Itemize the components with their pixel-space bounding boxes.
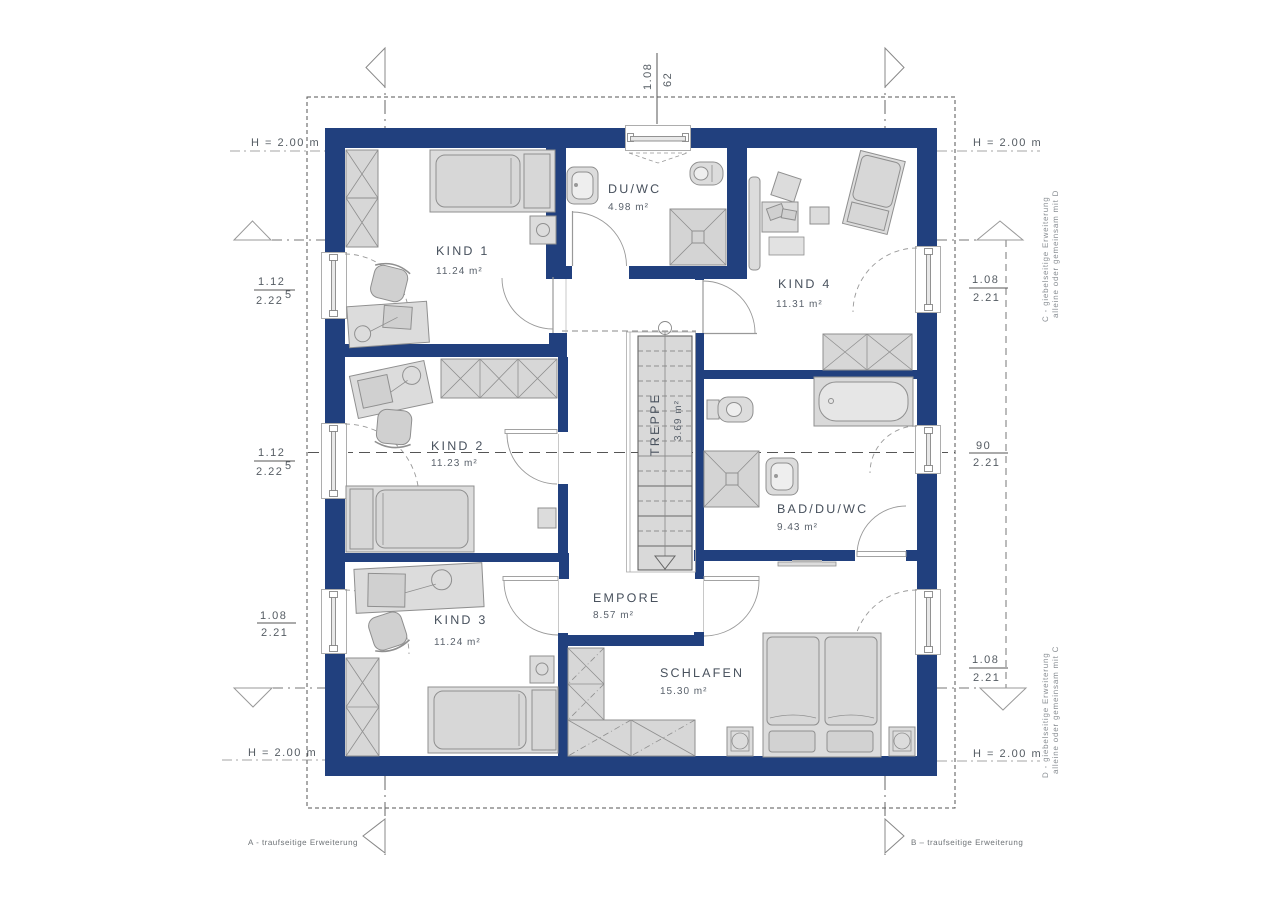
svg-text:1.08: 1.08 — [972, 274, 999, 286]
svg-text:TREPPE: TREPPE — [648, 393, 662, 456]
svg-text:A - traufseitige Erweiterung: A - traufseitige Erweiterung — [248, 838, 358, 847]
svg-text:H = 2.00 m: H = 2.00 m — [248, 747, 317, 759]
svg-text:DU/WC: DU/WC — [608, 182, 661, 196]
svg-text:BAD/DU/WC: BAD/DU/WC — [777, 502, 868, 516]
svg-text:62: 62 — [662, 72, 674, 87]
svg-text:1.08: 1.08 — [260, 610, 287, 622]
svg-text:H = 2.00 m: H = 2.00 m — [973, 748, 1042, 760]
svg-text:2.21: 2.21 — [973, 292, 1000, 304]
svg-text:11.31 m²: 11.31 m² — [776, 299, 823, 310]
svg-text:2.22: 2.22 — [256, 466, 283, 478]
svg-text:1.12: 1.12 — [258, 276, 285, 288]
svg-text:H = 2.00 m: H = 2.00 m — [251, 137, 320, 149]
svg-text:5: 5 — [285, 289, 293, 301]
svg-text:90: 90 — [976, 440, 991, 452]
svg-text:11.23 m²: 11.23 m² — [431, 458, 478, 469]
svg-text:alleine oder gemeinsam mit C: alleine oder gemeinsam mit C — [1051, 646, 1060, 774]
svg-text:2.21: 2.21 — [973, 672, 1000, 684]
svg-text:SCHLAFEN: SCHLAFEN — [660, 666, 744, 680]
svg-text:H = 2.00 m: H = 2.00 m — [973, 137, 1042, 149]
svg-text:9.43 m²: 9.43 m² — [777, 522, 818, 533]
svg-text:D - giebelseitige Erweiterung: D - giebelseitige Erweiterung — [1041, 653, 1050, 778]
svg-text:EMPORE: EMPORE — [593, 591, 660, 605]
svg-text:15.30 m²: 15.30 m² — [660, 686, 707, 697]
svg-text:4.98 m²: 4.98 m² — [608, 202, 649, 213]
svg-text:1.12: 1.12 — [258, 447, 285, 459]
svg-text:11.24 m²: 11.24 m² — [436, 266, 483, 277]
svg-text:C - giebelseitige Erweiterung: C - giebelseitige Erweiterung — [1041, 197, 1050, 322]
svg-text:8.57 m²: 8.57 m² — [593, 610, 634, 621]
svg-text:2.21: 2.21 — [261, 627, 288, 639]
svg-text:1.08: 1.08 — [642, 63, 654, 90]
svg-text:5: 5 — [285, 460, 293, 472]
svg-text:3.69 m²: 3.69 m² — [673, 400, 684, 441]
svg-text:B – traufseitige Erweiterung: B – traufseitige Erweiterung — [911, 838, 1023, 847]
svg-text:1.08: 1.08 — [972, 654, 999, 666]
svg-text:KIND 3: KIND 3 — [434, 613, 488, 627]
svg-text:2.22: 2.22 — [256, 295, 283, 307]
svg-text:2.21: 2.21 — [973, 457, 1000, 469]
svg-text:alleine oder gemeinsam mit D: alleine oder gemeinsam mit D — [1051, 190, 1060, 318]
svg-text:KIND 1: KIND 1 — [436, 244, 490, 258]
svg-text:KIND 2: KIND 2 — [431, 439, 485, 453]
svg-text:KIND 4: KIND 4 — [778, 277, 832, 291]
svg-text:11.24 m²: 11.24 m² — [434, 637, 481, 648]
